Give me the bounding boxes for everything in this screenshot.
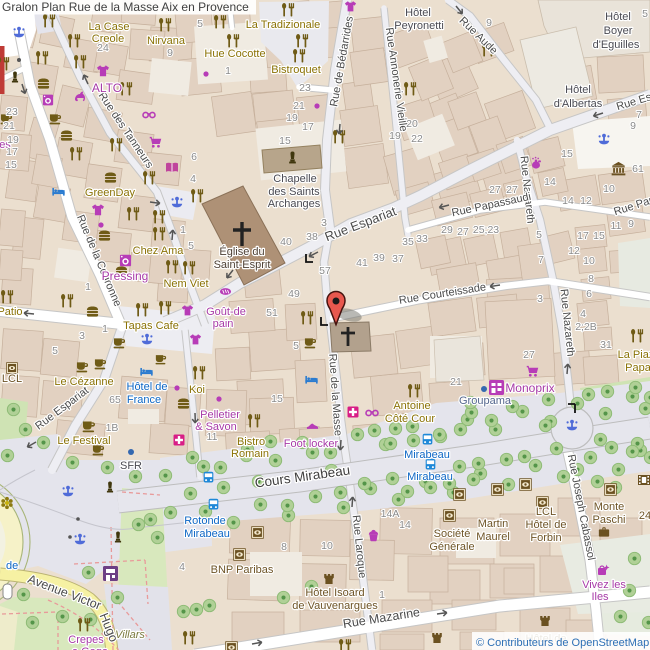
svg-text:de: de [6,560,18,572]
svg-text:Papa: Papa [625,362,650,374]
svg-text:20: 20 [406,118,418,130]
svg-text:© Contributeurs de OpenStreetM: © Contributeurs de OpenStreetMap [476,637,649,649]
svg-text:Bistro: Bistro [237,436,265,448]
svg-text:1: 1 [225,65,231,77]
svg-text:5: 5 [197,18,203,30]
svg-text:3: 3 [79,330,85,342]
svg-text:7: 7 [636,109,642,121]
svg-text:15: 15 [271,393,283,405]
svg-text:1: 1 [379,589,385,601]
svg-text:9: 9 [486,17,492,29]
svg-text:Mirabeau: Mirabeau [404,449,450,461]
svg-text:12: 12 [580,195,592,207]
svg-text:9: 9 [167,47,173,59]
svg-text:4: 4 [179,561,185,573]
svg-text:14: 14 [562,195,574,207]
svg-text:Mirabeau: Mirabeau [184,528,230,540]
svg-text:11: 11 [207,431,218,443]
svg-text:2;2B: 2;2B [575,321,597,333]
svg-text:9: 9 [628,218,634,230]
svg-text:Gralon Plan Rue de la Masse Ai: Gralon Plan Rue de la Masse Aix en Prove… [2,0,249,14]
svg-text:Côté Cour: Côté Cour [385,413,435,425]
svg-text:12: 12 [568,245,580,257]
svg-text:Archanges: Archanges [268,198,321,210]
svg-text:23: 23 [6,106,18,118]
svg-text:35: 35 [402,236,414,248]
svg-text:Foot locker: Foot locker [284,438,339,450]
svg-text:Antoine: Antoine [393,400,430,412]
svg-text:22: 22 [411,133,423,145]
svg-text:La Tradizionale: La Tradizionale [246,19,321,31]
svg-text:49: 49 [288,288,300,300]
svg-text:Hue Cocotte: Hue Cocotte [204,48,265,60]
svg-text:1: 1 [102,323,108,335]
svg-text:Église du: Église du [219,245,264,258]
svg-text:Crepes: Crepes [68,634,104,646]
svg-text:14A: 14A [381,508,400,520]
svg-text:17: 17 [6,146,18,158]
svg-text:65: 65 [109,394,121,406]
svg-text:1: 1 [180,224,186,236]
svg-text:8: 8 [281,541,287,553]
svg-text:Hôtel: Hôtel [405,7,431,19]
svg-text:10: 10 [583,255,595,267]
svg-text:Mirabeau: Mirabeau [407,471,453,483]
svg-text:5: 5 [642,8,648,20]
svg-text:Chapelle: Chapelle [273,173,316,185]
svg-text:Goût-de: Goût-de [206,306,246,318]
svg-text:17: 17 [577,230,589,242]
svg-text:Bistroquet: Bistroquet [271,64,321,76]
svg-text:11: 11 [611,220,622,232]
svg-text:23: 23 [299,82,311,94]
svg-text:LCL: LCL [536,506,556,518]
svg-text:Pelletier: Pelletier [200,409,240,421]
svg-text:1B: 1B [106,422,119,434]
svg-text:Le Festival: Le Festival [57,435,110,447]
svg-text:des Saints: des Saints [268,186,320,198]
svg-text:5: 5 [52,345,58,357]
svg-text:Monte: Monte [594,501,625,513]
svg-text:Martin: Martin [478,518,509,530]
svg-text:61: 61 [632,163,644,175]
svg-text:31: 31 [600,339,612,351]
svg-text:9: 9 [630,120,636,132]
svg-text:27: 27 [523,349,535,361]
svg-text:Hôtel: Hôtel [605,11,631,23]
svg-text:19: 19 [7,134,19,146]
svg-text:8: 8 [588,273,594,285]
svg-text:Le Cézanne: Le Cézanne [54,376,113,388]
svg-text:57: 57 [319,265,331,277]
svg-text:14: 14 [544,176,556,188]
svg-text:GreenDay: GreenDay [85,187,136,199]
svg-text:a Gogo: a Gogo [72,646,108,650]
svg-text:Tapas Cafe: Tapas Cafe [123,320,179,332]
svg-text:Villars: Villars [115,629,145,641]
svg-text:Hôtel Isoard: Hôtel Isoard [305,587,364,599]
svg-text:10: 10 [321,540,333,552]
svg-text:21: 21 [450,376,462,388]
svg-text:37: 37 [392,253,404,265]
svg-text:27: 27 [489,184,501,196]
svg-text:15: 15 [561,148,573,160]
svg-text:5: 5 [293,340,299,352]
svg-text:29: 29 [441,224,453,236]
svg-text:La Case: La Case [89,21,130,33]
svg-text:Nirvana: Nirvana [147,35,186,47]
svg-text:d'Albertas: d'Albertas [554,98,603,110]
svg-text:17: 17 [302,121,314,133]
svg-text:38: 38 [306,231,318,243]
svg-text:27: 27 [457,226,469,238]
svg-text:BNP Paribas: BNP Paribas [211,564,274,576]
svg-text:15: 15 [5,159,17,171]
svg-text:Koi: Koi [189,384,205,396]
svg-text:5: 5 [188,240,194,252]
svg-text:33: 33 [416,233,428,245]
svg-text:Boyer: Boyer [604,25,633,37]
svg-text:25;23: 25;23 [473,224,499,236]
svg-text:Maurel: Maurel [476,531,510,543]
svg-text:Vivez les: Vivez les [582,579,626,591]
svg-text:40: 40 [280,236,292,248]
svg-text:39: 39 [373,252,385,264]
svg-text:3: 3 [321,217,327,229]
svg-text:Chez Ama: Chez Ama [133,245,185,257]
svg-text:LCL: LCL [2,373,22,385]
svg-text:4: 4 [190,173,196,185]
svg-text:Pressing: Pressing [102,269,149,283]
svg-text:19: 19 [286,112,298,124]
svg-text:10: 10 [603,183,615,195]
svg-text:Monoprix: Monoprix [505,381,554,395]
svg-text:Rotonde: Rotonde [184,515,226,527]
svg-text:6: 6 [191,151,197,163]
svg-text:France: France [127,394,161,406]
svg-text:pain: pain [213,318,234,330]
svg-text:Paschi: Paschi [592,514,625,526]
svg-text:15: 15 [279,135,291,147]
svg-text:14: 14 [399,519,411,531]
svg-text:19: 19 [389,130,401,142]
svg-text:de Vauvenargues: de Vauvenargues [292,600,378,612]
svg-text:Iles: Iles [591,591,609,603]
svg-text:24: 24 [97,42,109,54]
svg-text:SFR: SFR [120,460,142,472]
svg-text:Peyronetti: Peyronetti [394,20,444,32]
svg-text:24: 24 [639,510,650,522]
svg-text:Saint-Esprit: Saint-Esprit [214,259,271,271]
svg-text:Groupama: Groupama [459,395,512,407]
svg-text:Société: Société [434,528,471,540]
svg-text:6: 6 [586,288,592,300]
svg-text:Générale: Générale [429,541,474,553]
svg-text:ALTO: ALTO [92,81,122,95]
svg-text:1: 1 [85,281,91,293]
svg-text:21: 21 [293,100,305,112]
svg-text:4: 4 [580,308,586,320]
svg-text:7: 7 [538,254,544,266]
svg-text:d'Eguilles: d'Eguilles [593,39,640,51]
svg-text:21: 21 [3,120,15,132]
svg-text:3: 3 [537,293,543,305]
svg-text:Hôtel de: Hôtel de [127,381,168,393]
svg-text:Nem Viet: Nem Viet [163,278,208,290]
svg-text:27: 27 [506,184,518,196]
svg-text:Hôtel: Hôtel [565,84,591,96]
svg-text:15: 15 [593,230,605,242]
svg-text:Hôtel de: Hôtel de [526,519,567,531]
svg-text:41: 41 [356,257,368,269]
svg-text:5: 5 [536,229,542,241]
svg-text:Forbin: Forbin [530,532,561,544]
svg-text:Patio: Patio [0,306,23,318]
svg-text:La Piaz: La Piaz [618,349,650,361]
svg-text:Romain: Romain [231,448,269,460]
svg-text:51: 51 [266,307,278,319]
